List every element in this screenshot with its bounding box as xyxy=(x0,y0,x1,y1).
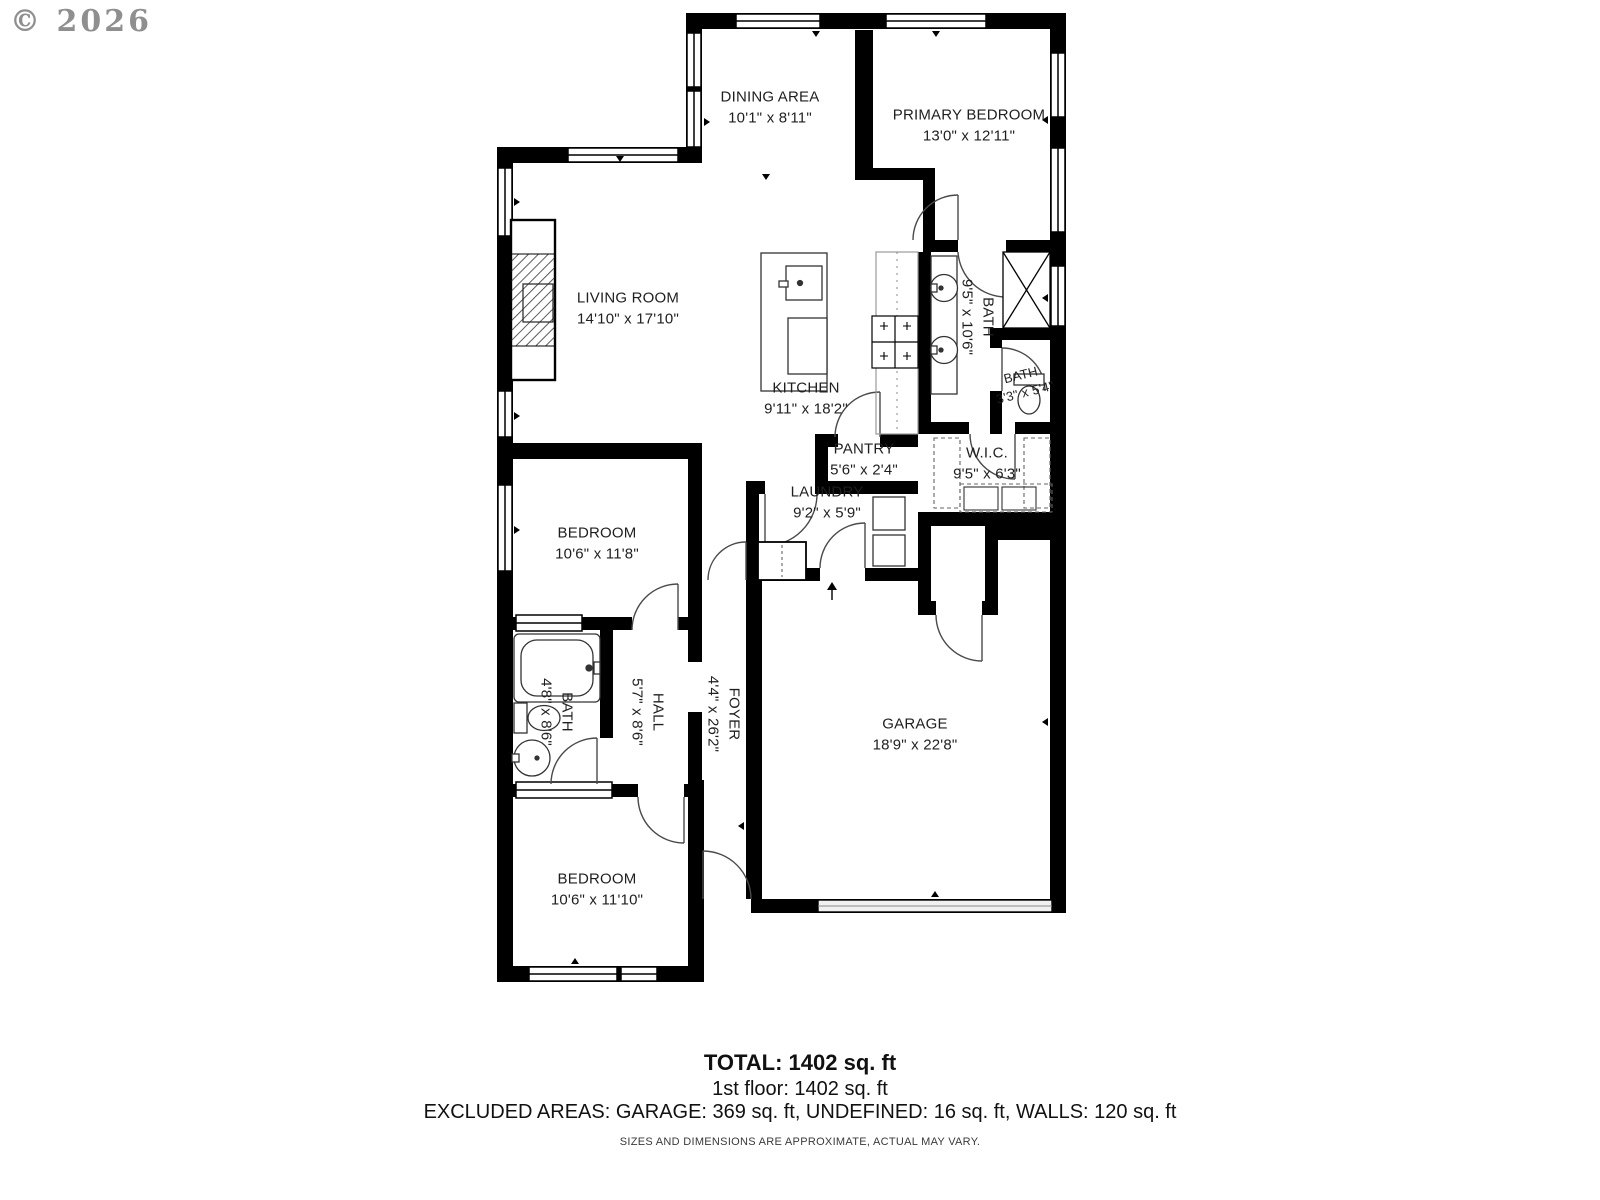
washer-dryer-icon xyxy=(873,497,905,566)
room-dims: 5'6" x 2'4" xyxy=(830,460,898,481)
room-label-kitchen: KITCHEN 9'11" x 18'2" xyxy=(764,378,848,419)
total-area-text: TOTAL: 1402 sq. ft xyxy=(0,1050,1600,1076)
room-label-garage: GARAGE 18'9" x 22'8" xyxy=(873,714,958,755)
kitchen-island xyxy=(761,253,827,391)
window xyxy=(529,967,617,981)
room-label-primary-bedroom: PRIMARY BEDROOM 13'0" x 12'11" xyxy=(893,105,1045,146)
room-dims: 9'5" x 10'6" xyxy=(956,279,977,355)
primary-bath-vanity xyxy=(931,256,958,394)
window xyxy=(621,967,657,981)
room-label-hall: HALL 5'7" x 8'6" xyxy=(626,678,667,746)
room-name: PANTRY xyxy=(830,439,898,460)
shower-icon xyxy=(1003,243,1050,328)
room-label-bedroom-2: BEDROOM 10'6" x 11'10" xyxy=(551,869,643,910)
dishwasher-icon xyxy=(788,318,827,374)
fireplace xyxy=(511,220,555,380)
window xyxy=(687,33,701,87)
door-garage-entry xyxy=(936,615,982,661)
room-name: BEDROOM xyxy=(551,869,643,890)
copyright-watermark: © 2026 xyxy=(10,4,152,39)
room-label-bedroom-1: BEDROOM 10'6" x 11'8" xyxy=(555,523,639,564)
closet-doors xyxy=(516,782,612,798)
window xyxy=(1051,148,1065,232)
room-dims: 10'6" x 11'10" xyxy=(551,890,643,911)
closet-doors xyxy=(516,615,582,631)
room-name: LAUNDRY xyxy=(791,482,864,503)
kitchen-sink-icon xyxy=(779,266,822,300)
window xyxy=(886,14,986,28)
door-bedroom-2 xyxy=(638,797,684,843)
room-dims: 18'9" x 22'8" xyxy=(873,735,958,756)
room-name: FOYER xyxy=(723,676,744,752)
room-name: GARAGE xyxy=(873,714,958,735)
kitchen-counter xyxy=(872,252,918,434)
door-coat-closet xyxy=(708,542,746,580)
room-label-hall-bath: BATH 4'8" x 8'6" xyxy=(535,678,576,746)
room-label-laundry: LAUNDRY 9'2" x 5'9" xyxy=(791,482,864,523)
door-front-entry xyxy=(703,851,751,899)
disclaimer-text: SIZES AND DIMENSIONS ARE APPROXIMATE, AC… xyxy=(0,1136,1600,1148)
room-name: BATH xyxy=(977,279,998,355)
room-name: DINING AREA xyxy=(721,87,820,108)
dimension-ticks xyxy=(514,31,1048,964)
window xyxy=(1051,266,1065,326)
garage-door xyxy=(818,900,1052,912)
bathroom-sink-icon xyxy=(931,337,958,364)
room-name: PRIMARY BEDROOM xyxy=(893,105,1045,126)
room-name: HALL xyxy=(647,678,668,746)
room-label-foyer: FOYER 4'4" x 26'2" xyxy=(702,676,743,752)
room-label-wic: W.I.C. 9'5" x 6'3" xyxy=(953,443,1021,484)
room-dims: 9'2" x 5'9" xyxy=(791,503,864,524)
room-dims: 4'8" x 8'6" xyxy=(535,678,556,746)
room-label-primary-bath: BATH 9'5" x 10'6" xyxy=(956,279,997,355)
door-laundry-vestibule xyxy=(820,523,865,568)
door-primary-bedroom xyxy=(913,195,958,240)
room-dims: 4'4" x 26'2" xyxy=(702,676,723,752)
room-dims: 9'5" x 6'3" xyxy=(953,464,1021,485)
stove-icon xyxy=(872,316,918,368)
room-dims: 9'11" x 18'2" xyxy=(764,399,848,420)
room-dims: 10'6" x 11'8" xyxy=(555,544,639,565)
room-name: BEDROOM xyxy=(555,523,639,544)
window xyxy=(1051,53,1065,117)
room-dims: 10'1" x 8'11" xyxy=(721,108,820,129)
floor-plan-drawing xyxy=(0,0,1600,1200)
window xyxy=(568,148,678,162)
bathroom-sink-icon xyxy=(931,275,958,302)
first-floor-area-text: 1st floor: 1402 sq. ft xyxy=(0,1078,1600,1101)
windows xyxy=(498,14,1065,981)
room-name: BATH xyxy=(556,678,577,746)
floor-plan-page: © 2026 DINING AREA 10'1" x 8'11" PRIMARY… xyxy=(0,0,1600,1200)
room-dims: 5'7" x 8'6" xyxy=(626,678,647,746)
room-label-dining: DINING AREA 10'1" x 8'11" xyxy=(721,87,820,128)
excluded-areas-text: EXCLUDED AREAS: GARAGE: 369 sq. ft, UNDE… xyxy=(0,1101,1600,1124)
room-name: LIVING ROOM xyxy=(577,288,679,309)
room-name: KITCHEN xyxy=(764,378,848,399)
window xyxy=(687,91,701,147)
entry-arrow-icon xyxy=(827,582,837,600)
room-label-pantry: PANTRY 5'6" x 2'4" xyxy=(830,439,898,480)
window xyxy=(736,14,820,28)
coat-closet xyxy=(758,542,806,580)
room-label-living-room: LIVING ROOM 14'10" x 17'10" xyxy=(577,288,679,329)
room-dims: 13'0" x 12'11" xyxy=(893,126,1045,147)
window xyxy=(498,391,512,437)
room-dims: 14'10" x 17'10" xyxy=(577,309,679,330)
door-bedroom-1 xyxy=(632,584,678,630)
room-name: W.I.C. xyxy=(953,443,1021,464)
window xyxy=(498,485,512,571)
